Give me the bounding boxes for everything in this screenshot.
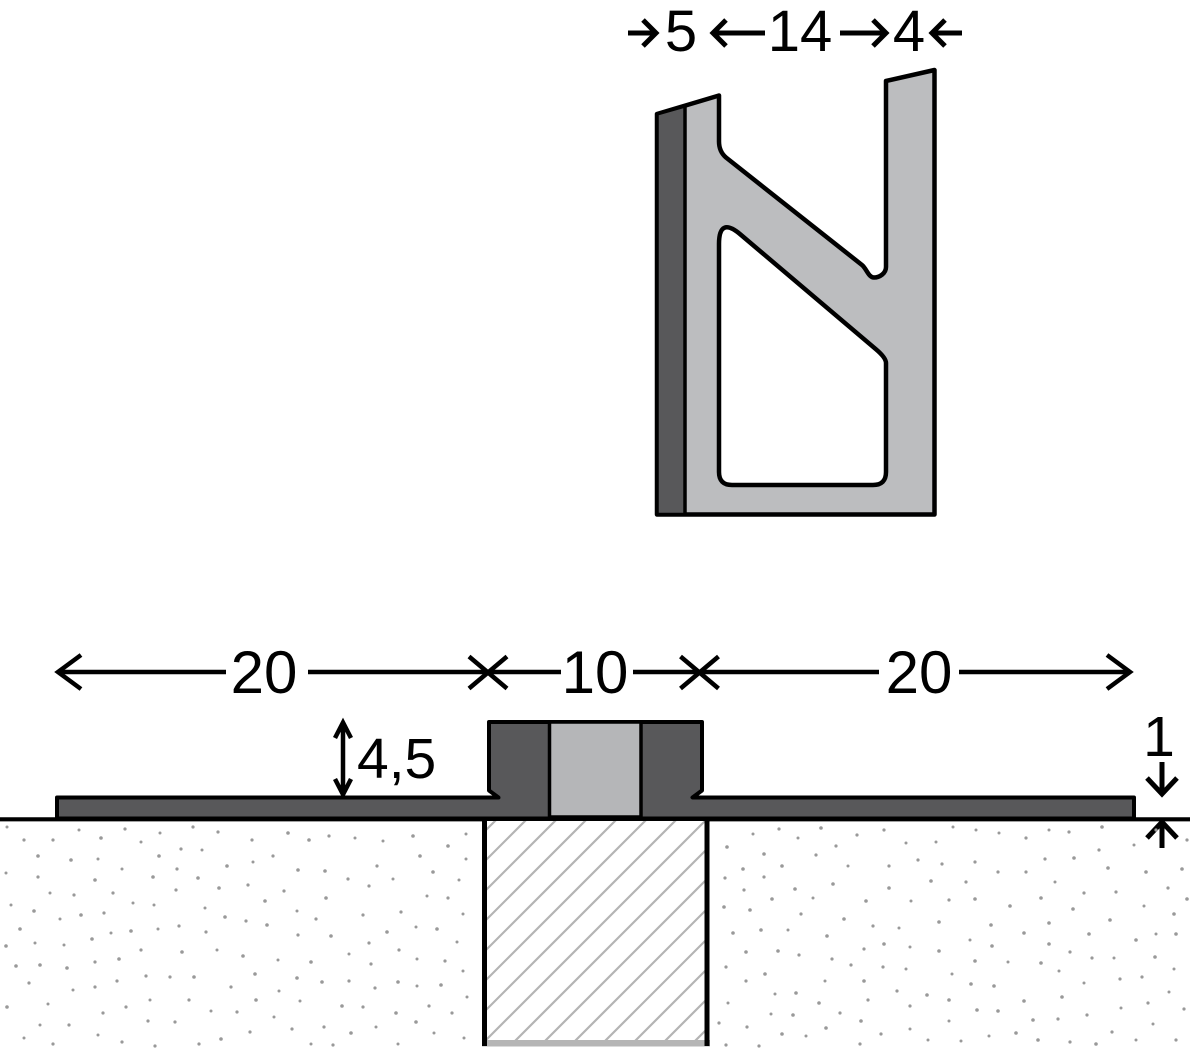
svg-text:14: 14 bbox=[768, 0, 833, 64]
svg-text:10: 10 bbox=[562, 639, 629, 706]
svg-text:20: 20 bbox=[886, 639, 953, 706]
svg-text:4: 4 bbox=[893, 0, 925, 64]
svg-text:20: 20 bbox=[231, 639, 298, 706]
svg-text:1: 1 bbox=[1143, 705, 1175, 769]
svg-text:5: 5 bbox=[665, 0, 697, 64]
svg-text:4,5: 4,5 bbox=[357, 727, 436, 791]
